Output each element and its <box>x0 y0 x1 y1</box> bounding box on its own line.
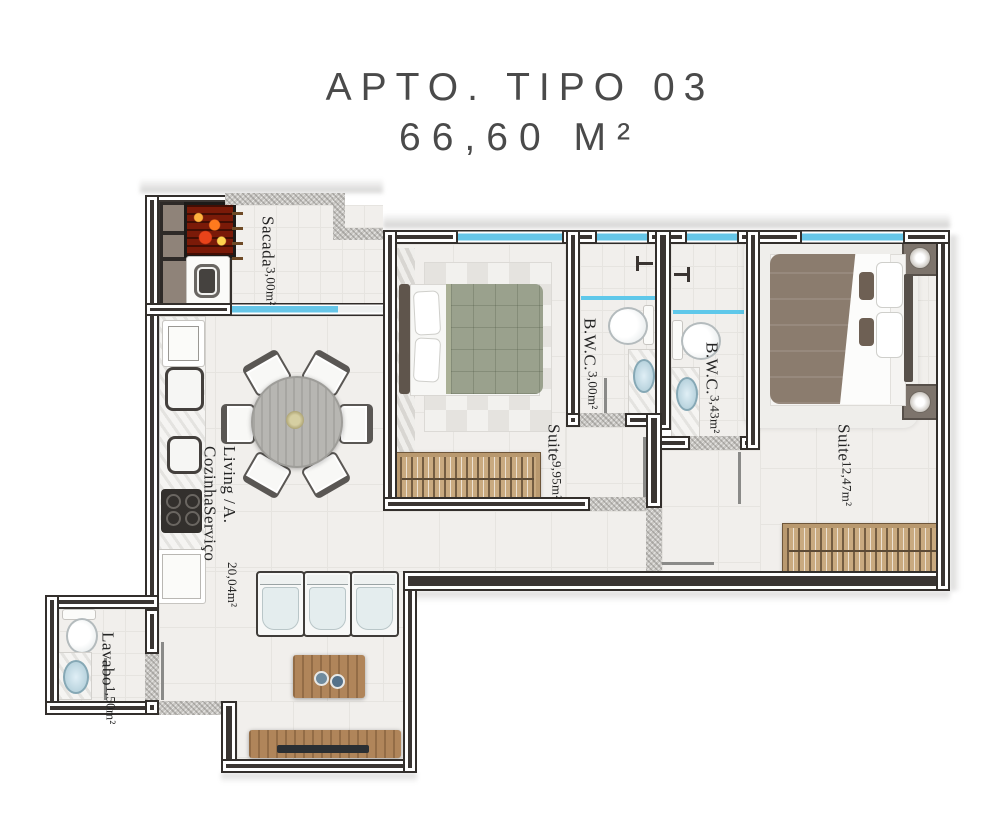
room-label-suite1: Suite 9,95m² <box>544 424 564 514</box>
sofa-seat <box>350 571 399 637</box>
barbecue-sink-basin <box>194 264 220 298</box>
room-label-bwc2: B.W.C. 3,43m² <box>702 342 722 428</box>
cushion <box>859 318 874 346</box>
decor-icon <box>330 674 345 689</box>
nightstand <box>902 384 938 420</box>
burner-icon <box>185 494 200 509</box>
wardrobe <box>396 453 540 503</box>
bed-headboard <box>399 284 410 394</box>
wall <box>903 230 950 244</box>
room-label-living: Living / Cozinha A. Serviço 20,04m² <box>200 446 239 566</box>
burner-icon <box>185 511 200 526</box>
wall <box>936 230 950 591</box>
table-centerpiece <box>286 411 304 429</box>
wall <box>403 571 417 773</box>
window-sacada-door <box>232 303 338 316</box>
wall <box>145 609 159 654</box>
shadow <box>140 178 383 193</box>
kitchen-sink <box>165 367 204 411</box>
door-leaf <box>738 452 741 504</box>
toilet <box>608 307 648 345</box>
decor-icon <box>314 671 329 686</box>
pillow <box>876 312 903 358</box>
pillow <box>413 337 441 382</box>
wall <box>655 230 671 430</box>
wall <box>566 413 580 427</box>
shower-glass <box>581 296 655 300</box>
door-threshold-suite2 <box>646 508 662 571</box>
window <box>458 230 562 244</box>
wall <box>45 595 159 609</box>
bed-headboard <box>904 274 913 382</box>
wall <box>383 230 397 511</box>
barbecue-grill <box>184 202 236 258</box>
page-title: Apto. Tipo 03 <box>45 66 995 110</box>
sink-basin <box>633 359 655 393</box>
door-threshold-bwc2 <box>690 436 740 450</box>
room-floor-sacada <box>232 205 383 303</box>
wall <box>221 759 417 773</box>
dining-chair <box>339 404 373 444</box>
wall <box>746 230 760 450</box>
shadow <box>221 773 417 783</box>
tv-rack <box>249 730 401 758</box>
pillow <box>876 262 903 308</box>
floor-plan: Apto. Tipo 03 66,60 m² <box>0 0 1000 813</box>
shadow <box>403 591 950 602</box>
page-subtitle-area: 66,60 m² <box>45 116 995 160</box>
lamp-icon <box>909 391 931 413</box>
bed-duvet <box>446 284 543 394</box>
toilet <box>66 618 98 654</box>
concrete-parapet <box>225 193 339 205</box>
title-block: Apto. Tipo 03 66,60 m² <box>45 66 995 160</box>
sink-basin <box>63 660 89 694</box>
shower-glass <box>673 310 746 314</box>
wardrobe <box>783 524 943 576</box>
shower-head-icon <box>638 262 653 265</box>
door-leaf <box>161 642 164 700</box>
skewer-icon <box>232 257 243 260</box>
wall <box>45 595 59 715</box>
room-label-bwc1: B.W.C. 3,00m² <box>580 318 600 404</box>
sink-basin <box>676 377 698 411</box>
kitchen-sink-2 <box>167 436 202 474</box>
room-floor-suite2-vestibule <box>662 450 760 571</box>
concrete-parapet <box>333 228 383 240</box>
room-floor-suite1-vestibule <box>566 427 646 497</box>
wall <box>145 195 159 609</box>
skewer-icon <box>232 242 243 245</box>
cushion <box>859 272 874 300</box>
room-label-sacada: Sacada 3,00m² <box>258 216 278 312</box>
skewer-icon <box>232 227 243 230</box>
wall <box>145 700 159 715</box>
nightstand <box>902 240 938 276</box>
wall <box>646 413 662 508</box>
shadow <box>383 213 950 228</box>
tv-icon <box>277 745 369 753</box>
door-threshold-entrance <box>159 701 221 715</box>
wall <box>566 230 580 427</box>
fridge <box>157 549 206 604</box>
window <box>802 230 903 244</box>
dining-chair <box>221 404 255 444</box>
burner-icon <box>166 511 181 526</box>
shower-head-icon <box>636 256 639 271</box>
wall <box>403 571 950 591</box>
window-sacada-frame <box>338 303 383 316</box>
window <box>597 230 647 244</box>
shadow <box>950 235 961 591</box>
skewer-icon <box>232 212 243 215</box>
wall <box>145 303 232 316</box>
burner-icon <box>166 494 181 509</box>
door-threshold-lavabo <box>145 654 159 700</box>
pillow <box>413 290 441 335</box>
room-label-lavabo: Lavabo 1,50m² <box>98 632 118 704</box>
shower-head-icon <box>687 267 690 282</box>
door-leaf <box>662 562 714 565</box>
washer <box>162 320 205 367</box>
room-label-suite2: Suite 12,47m² <box>834 424 854 514</box>
sofa-seat <box>303 571 352 637</box>
door-threshold-bwc1 <box>580 413 625 427</box>
window <box>687 230 737 244</box>
door-threshold-suite1 <box>590 497 647 511</box>
lamp-icon <box>909 247 931 269</box>
sofa-seat <box>256 571 305 637</box>
coffee-table <box>293 655 365 698</box>
door-leaf <box>604 378 607 413</box>
